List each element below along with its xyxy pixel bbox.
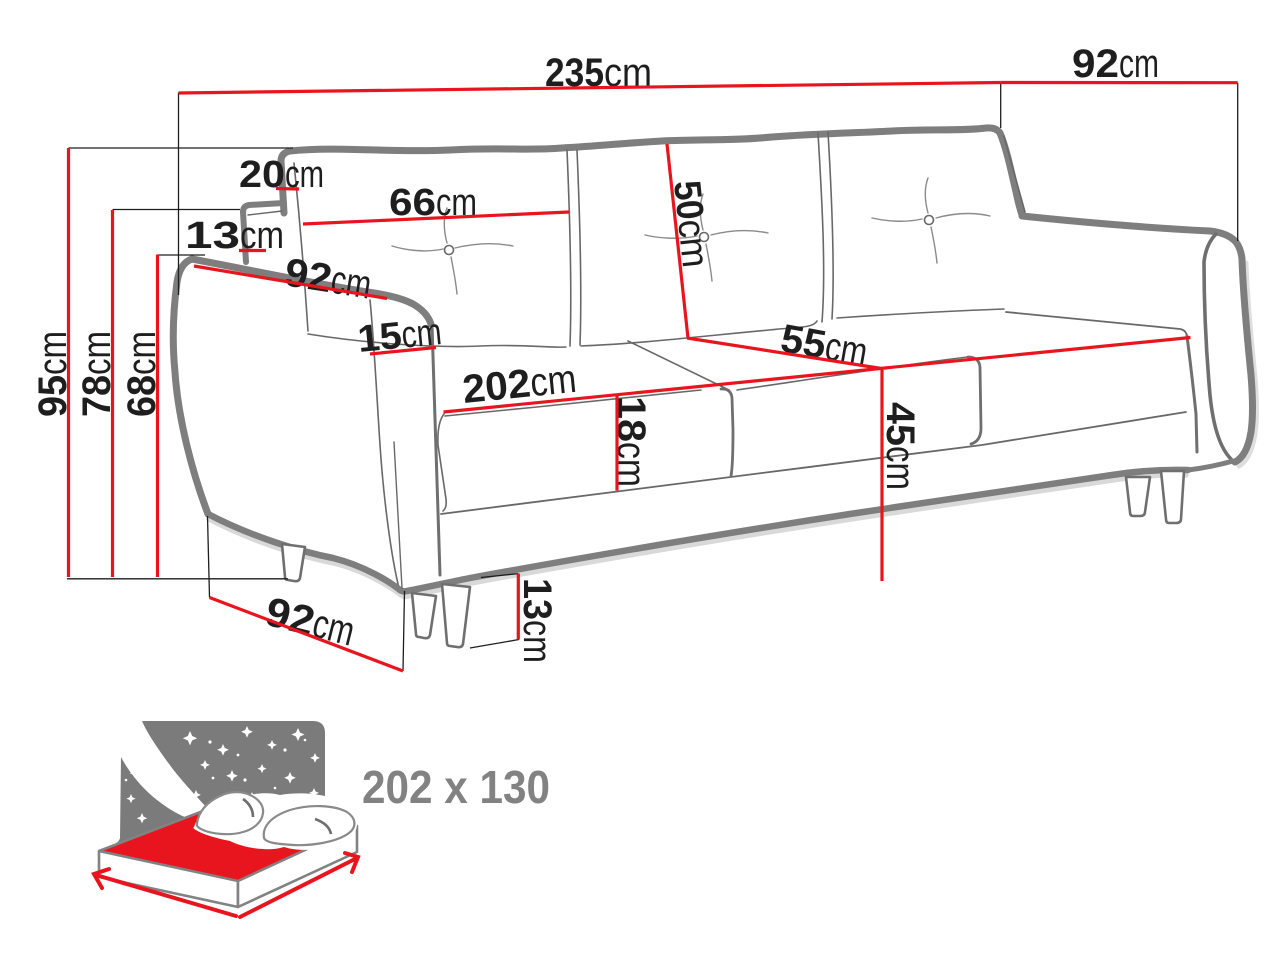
svg-text:45cm: 45cm	[878, 402, 922, 490]
svg-text:15cm: 15cm	[356, 311, 444, 361]
svg-text:92cm: 92cm	[1072, 42, 1159, 86]
svg-text:13cm: 13cm	[185, 215, 284, 257]
svg-text:202 x 130: 202 x 130	[362, 761, 550, 813]
svg-text:13cm: 13cm	[515, 578, 559, 663]
svg-text:92cm: 92cm	[282, 250, 375, 307]
